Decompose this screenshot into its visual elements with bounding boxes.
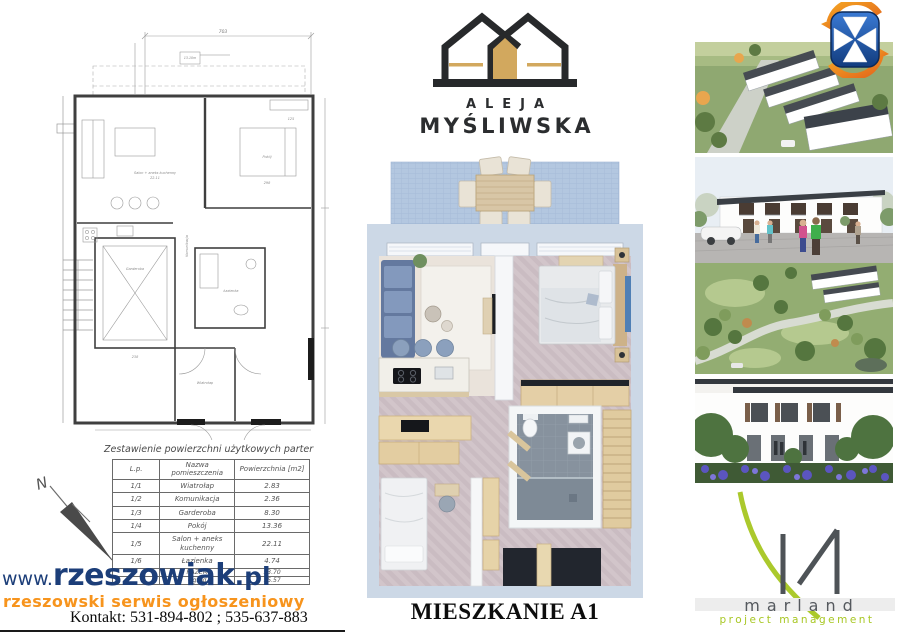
photo-aerial-greenery <box>695 263 893 374</box>
table-row: 1/4Pokój13.36 <box>113 519 310 532</box>
table-cell: 1/1 <box>113 479 160 492</box>
table-row: 1/5Salon + aneks kuchenny22.11 <box>113 533 310 555</box>
svg-text:Pokój: Pokój <box>262 155 271 159</box>
table-cell: Garderoba <box>160 506 235 519</box>
table-title: Zestawienie powierzchni użytkowych parte… <box>104 444 310 455</box>
terrace-label-box: 13.10m <box>180 52 230 64</box>
table-row: 1/2Komunikacja2.36 <box>113 493 310 506</box>
col-header-lp: L.p. <box>113 460 160 480</box>
svg-text:298: 298 <box>264 181 271 185</box>
bathroom <box>509 406 601 528</box>
dimension-lines <box>95 32 329 430</box>
table-cell: Pokój <box>160 519 235 532</box>
developer-logo: marland project management <box>695 488 895 636</box>
table-cell: 1/4 <box>113 519 160 532</box>
table-cell: Komunikacja <box>160 493 235 506</box>
walls <box>75 96 313 423</box>
table-cell: 2.83 <box>235 479 310 492</box>
houses-logo-icon <box>427 6 583 90</box>
terrace <box>391 157 619 226</box>
portal-logo: www.rzeszowiak.pl <box>2 561 271 591</box>
photo-street-view <box>695 157 893 263</box>
svg-text:13.10m: 13.10m <box>184 56 196 60</box>
brand-line1: ALEJA <box>385 97 625 112</box>
svg-text:Salon + aneks kuchenny: Salon + aneks kuchenny <box>134 171 177 175</box>
portal-logo-tld: .pl <box>235 562 271 591</box>
svg-text:125: 125 <box>288 117 294 121</box>
table-row: 1/1Wiatrołap2.83 <box>113 479 310 492</box>
estate-brand: ALEJA MYŚLIWSKA <box>385 6 625 138</box>
svg-text:Wiatrołap: Wiatrołap <box>197 381 213 385</box>
svg-text:N: N <box>34 473 50 494</box>
table-cell: 8.30 <box>235 506 310 519</box>
portal-logo-name: rzeszowiak <box>53 558 235 593</box>
brand-line2: MYŚLIWSKA <box>385 114 625 138</box>
rzeszow-crest-icon <box>817 2 893 78</box>
terrace-outline <box>93 66 305 96</box>
table-row: 1/3Garderoba8.30 <box>113 506 310 519</box>
flyer-page: 703 13.10m <box>0 0 900 636</box>
developer-subtitle: project management <box>695 615 897 626</box>
dim-label-top: 703 <box>219 29 228 35</box>
svg-text:Garderoba: Garderoba <box>126 267 144 271</box>
svg-text:22.11: 22.11 <box>150 176 160 180</box>
col-header-area: Powierzchnia [m2] <box>235 460 310 480</box>
table-cell: 13.36 <box>235 519 310 532</box>
table-cell: Salon + aneks kuchenny <box>160 533 235 555</box>
table-cell: 22.11 <box>235 533 310 555</box>
table-cell: 2.36 <box>235 493 310 506</box>
page-edge-line <box>0 630 345 632</box>
stairs <box>603 410 631 528</box>
contact-phone-line: Kontakt: 531-894-802 ; 535-637-883 <box>70 608 308 627</box>
svg-text:Łazienka: Łazienka <box>223 289 239 293</box>
photo-townhouse-garden <box>695 379 893 483</box>
svg-text:Komunikacja: Komunikacja <box>185 235 189 257</box>
top-windows <box>387 243 623 256</box>
room-labels: Salon + aneks kuchenny 22.11 Pokój Garde… <box>126 117 294 385</box>
table-cell: 1/5 <box>113 533 160 555</box>
apartment-title: MIESZKANIE A1 <box>363 599 647 625</box>
wardrobe <box>521 380 629 406</box>
col-header-name: Nazwa pomieszczenia <box>160 460 235 480</box>
svg-text:238: 238 <box>132 355 139 359</box>
table-cell: Wiatrołap <box>160 479 235 492</box>
portal-logo-www: www. <box>2 568 53 590</box>
table-header-row: L.p. Nazwa pomieszczenia Powierzchnia [m… <box>113 460 310 480</box>
table-cell: 1/2 <box>113 493 160 506</box>
technical-floor-plan: 703 13.10m <box>55 8 347 440</box>
developer-name: marland <box>695 598 900 614</box>
table-cell: 1/3 <box>113 506 160 519</box>
apartment-3d-plan <box>363 148 647 600</box>
